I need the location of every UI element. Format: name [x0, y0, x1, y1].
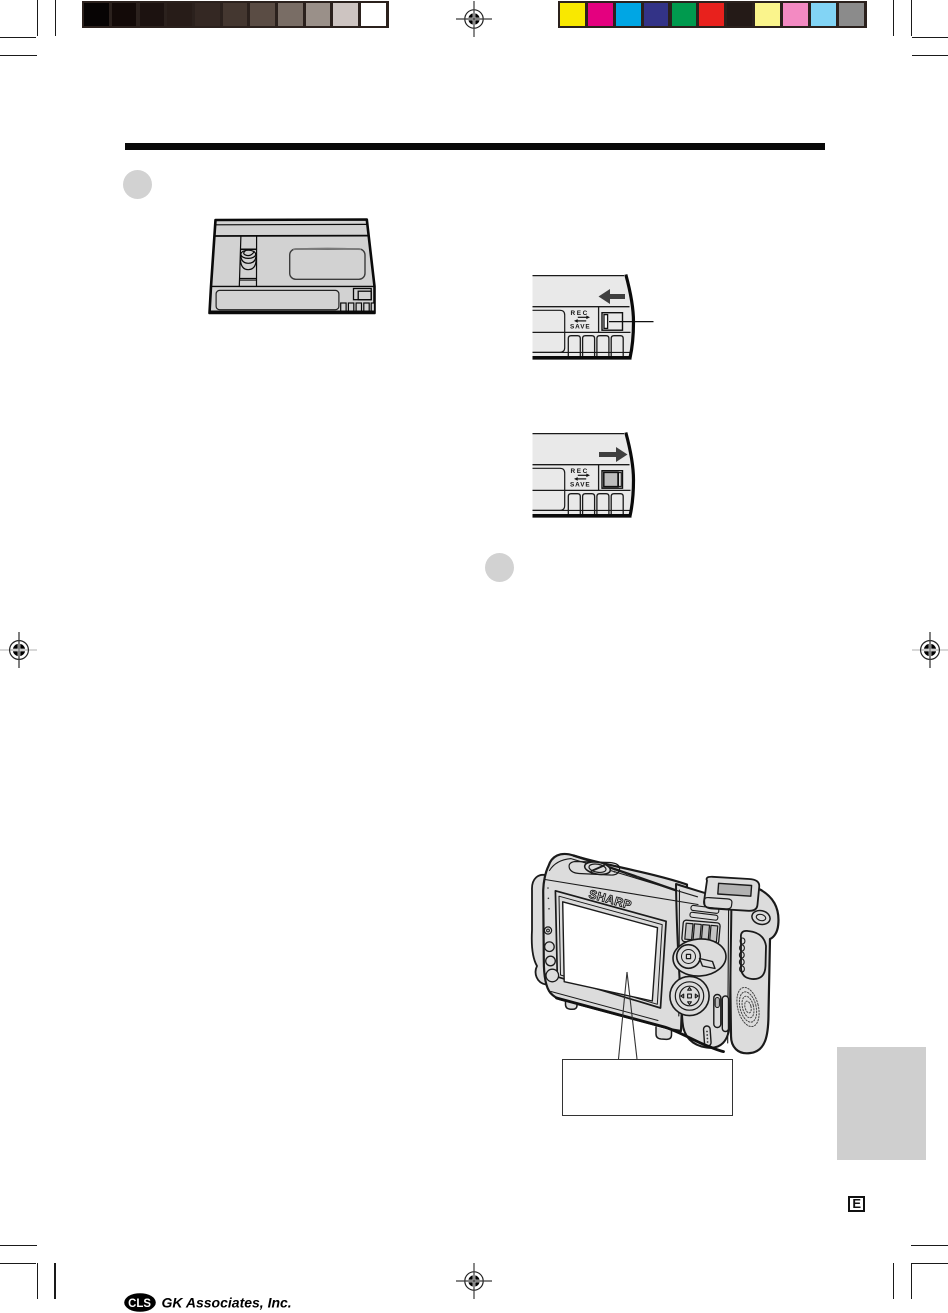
svg-text:REC: REC	[571, 468, 589, 475]
svg-text:CLS: CLS	[128, 1297, 151, 1310]
svg-text:GK Associates, Inc.: GK Associates, Inc.	[162, 1295, 292, 1311]
svg-text:SAVE: SAVE	[570, 324, 591, 331]
svg-text:REC: REC	[571, 310, 589, 317]
svg-text:SAVE: SAVE	[570, 482, 591, 489]
